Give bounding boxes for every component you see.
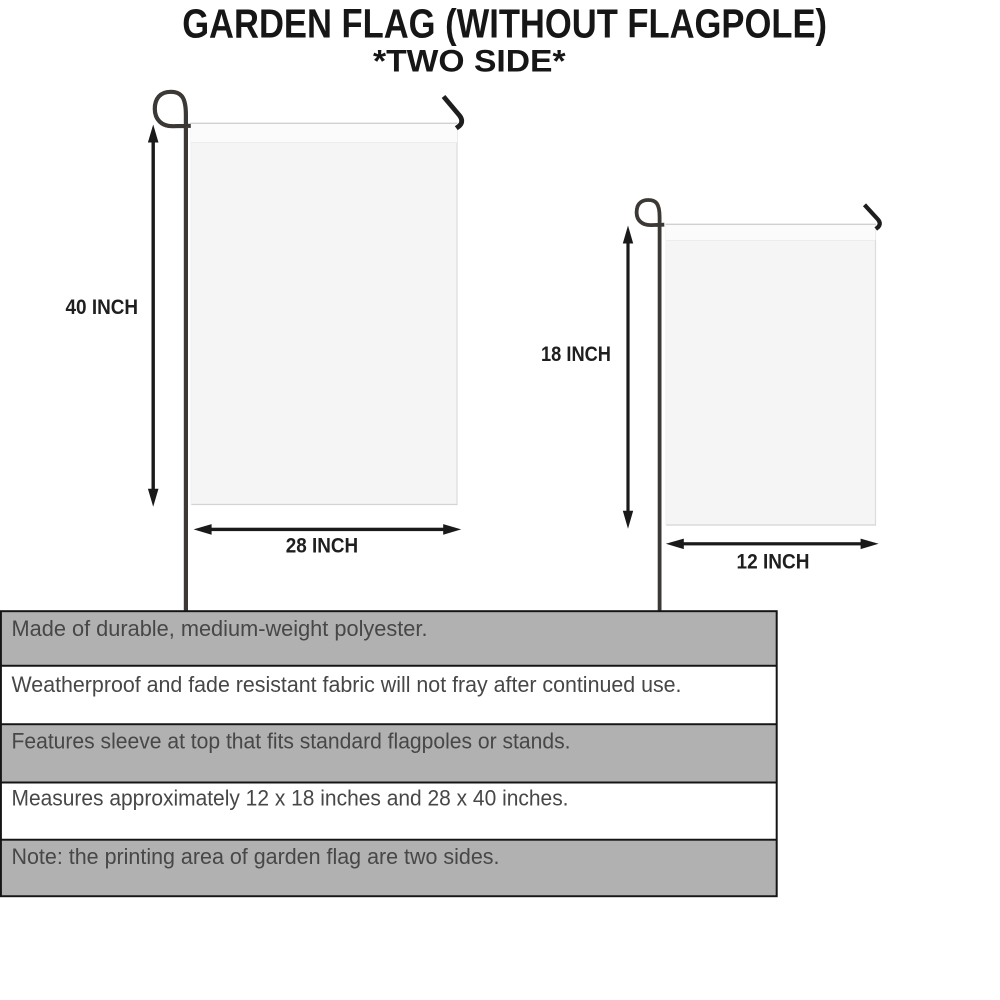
- svg-text:40 INCH: 40 INCH: [66, 296, 139, 319]
- svg-text:Measures approximately 12 x 18: Measures approximately 12 x 18 inches an…: [12, 786, 569, 811]
- svg-text:Note: the printing area of gar: Note: the printing area of garden flag a…: [12, 844, 500, 869]
- svg-text:*TWO SIDE*: *TWO SIDE*: [373, 42, 566, 78]
- svg-text:12 INCH: 12 INCH: [737, 550, 810, 573]
- svg-text:Weatherproof and fade resistan: Weatherproof and fade resistant fabric w…: [12, 672, 682, 697]
- svg-text:Made of durable, medium-weight: Made of durable, medium-weight polyester…: [12, 616, 428, 641]
- svg-text:18 INCH: 18 INCH: [541, 343, 611, 366]
- svg-text:GARDEN FLAG (WITHOUT FLAGPOLE): GARDEN FLAG (WITHOUT FLAGPOLE): [182, 0, 827, 46]
- svg-text:Features sleeve at top that fi: Features sleeve at top that fits standar…: [12, 728, 571, 753]
- svg-text:28 INCH: 28 INCH: [286, 534, 358, 557]
